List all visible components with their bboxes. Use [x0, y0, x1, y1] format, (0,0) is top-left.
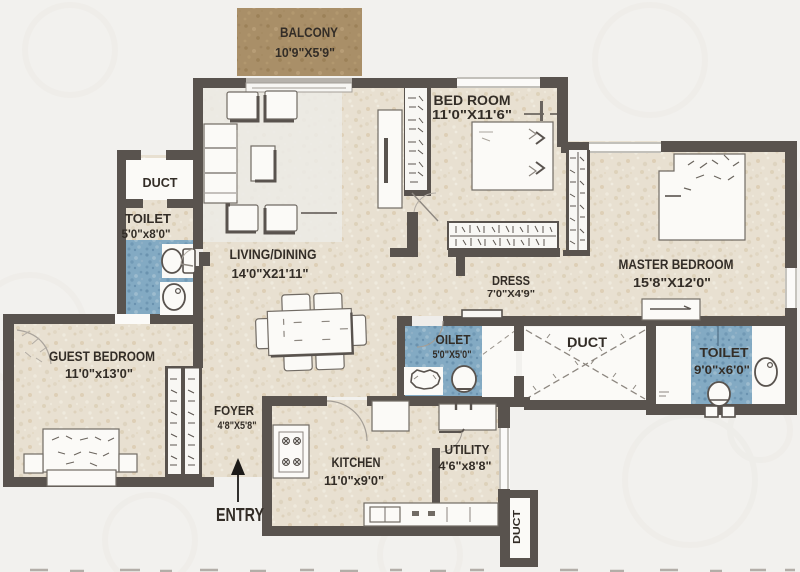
svg-text:4'6"x8'8": 4'6"x8'8": [439, 459, 492, 473]
svg-text:DUCT: DUCT: [567, 335, 608, 350]
svg-text:TOILET: TOILET: [700, 345, 749, 360]
svg-text:11'0"x13'0": 11'0"x13'0": [65, 366, 133, 381]
svg-text:LIVING/DINING: LIVING/DINING: [230, 246, 317, 262]
svg-text:BALCONY: BALCONY: [280, 24, 339, 40]
svg-text:4'8"X5'8": 4'8"X5'8": [218, 420, 257, 432]
svg-text:KITCHEN: KITCHEN: [332, 455, 381, 470]
svg-text:UTILITY: UTILITY: [445, 443, 491, 457]
svg-text:15'8"X12'0": 15'8"X12'0": [633, 275, 711, 290]
svg-text:DUCT: DUCT: [512, 510, 523, 544]
svg-text:ENTRY: ENTRY: [216, 505, 264, 525]
svg-text:10'9"X5'9": 10'9"X5'9": [275, 45, 335, 60]
svg-text:14'0"X21'11": 14'0"X21'11": [232, 266, 309, 281]
svg-text:DUCT: DUCT: [143, 175, 178, 190]
svg-text:OILET: OILET: [436, 332, 471, 347]
svg-text:TOILET: TOILET: [125, 211, 171, 226]
svg-text:9'0"x6'0": 9'0"x6'0": [694, 363, 750, 377]
svg-text:BED ROOM: BED ROOM: [434, 92, 511, 108]
svg-text:7'0"X4'9": 7'0"X4'9": [487, 288, 535, 300]
svg-text:FOYER: FOYER: [214, 404, 254, 418]
svg-text:11'0"X11'6": 11'0"X11'6": [432, 107, 512, 122]
svg-text:5'0"X5'0": 5'0"X5'0": [433, 349, 472, 361]
svg-text:11'0"x9'0": 11'0"x9'0": [324, 473, 384, 488]
svg-text:GUEST BEDROOM: GUEST BEDROOM: [49, 348, 155, 364]
svg-text:5'0"x8'0": 5'0"x8'0": [122, 227, 171, 241]
svg-text:DRESS: DRESS: [492, 274, 530, 288]
svg-text:MASTER BEDROOM: MASTER BEDROOM: [619, 256, 734, 272]
